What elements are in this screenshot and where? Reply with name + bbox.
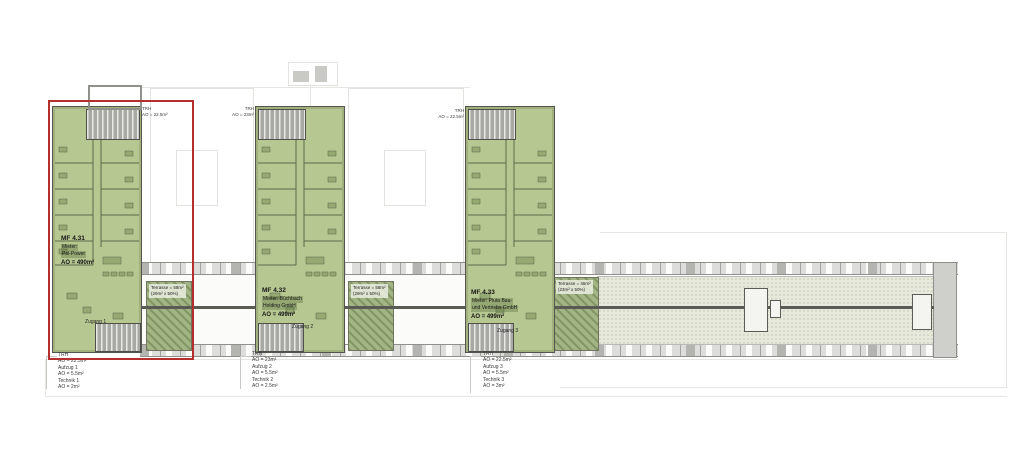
context-roof-block bbox=[315, 66, 327, 82]
wing-2-entrance-label: Zugang 2 bbox=[292, 324, 313, 330]
trh-label-wing-3: TRHAO = 22.5m² bbox=[430, 108, 464, 120]
leader-line-3 bbox=[470, 356, 481, 393]
wing-3-entrance-label: Zugang 3 bbox=[497, 328, 518, 334]
wing-3-unit-label: MF 4.33 Mieter: Pluta Bau- und Vertriebs… bbox=[471, 289, 518, 322]
wing-3-stair-core-top bbox=[468, 109, 516, 140]
unit-mf-4-33[interactable]: MF 4.33 Mieter: Pluta Bau- und Vertriebs… bbox=[465, 106, 555, 353]
terrace-2-label: Terrasse = 58m²(29m² x 50%) bbox=[351, 284, 388, 298]
context-roof-block bbox=[293, 71, 309, 82]
corridor-shaft bbox=[770, 300, 781, 318]
notes-wing-2: TRHAO = 23m² Aufzug 2AO = 5.5m² Technik … bbox=[252, 351, 278, 389]
context-roof-structure bbox=[288, 62, 338, 86]
context-stem-line bbox=[310, 84, 311, 106]
floor-plan-canvas: Terrasse = 58m²(29m² x 50%) Terrasse = 5… bbox=[0, 0, 1024, 459]
context-line-right-edge bbox=[1006, 232, 1007, 388]
context-line-right-bottom bbox=[560, 387, 1007, 388]
notes-wing-3: TRHAO = 22.5m² Aufzug 3AO = 5.5m² Techni… bbox=[483, 351, 511, 389]
terrace-3-label: Terrasse = 46m²(23m² x 50%) bbox=[556, 280, 593, 294]
terrace-2: Terrasse = 58m²(29m² x 50%) bbox=[348, 281, 394, 351]
horizontal-wing-end-wall bbox=[933, 262, 957, 358]
terrace-3: Terrasse = 46m²(23m² x 50%) bbox=[553, 277, 599, 351]
context-line-bottom-2 bbox=[45, 396, 1007, 397]
corridor-stair-pocket-2 bbox=[912, 294, 932, 330]
trh-label-wing-2: TRHAO = 23m² bbox=[220, 106, 254, 118]
unit-mf-4-32[interactable]: MF 4.32 Mieter: Büchbach Holding GmbH AO… bbox=[255, 106, 345, 353]
context-line-top bbox=[140, 87, 470, 88]
wing-2-unit-label: MF 4.32 Mieter: Büchbach Holding GmbH AO… bbox=[262, 287, 303, 320]
context-line-right-top bbox=[600, 232, 1007, 233]
wing-2-stair-core-top bbox=[258, 109, 306, 140]
leader-line-2 bbox=[240, 356, 251, 389]
red-highlight-box bbox=[48, 100, 194, 360]
leader-line-1 bbox=[46, 356, 57, 389]
corridor-stair-pocket-1 bbox=[744, 288, 768, 332]
context-structure-2 bbox=[384, 150, 426, 206]
